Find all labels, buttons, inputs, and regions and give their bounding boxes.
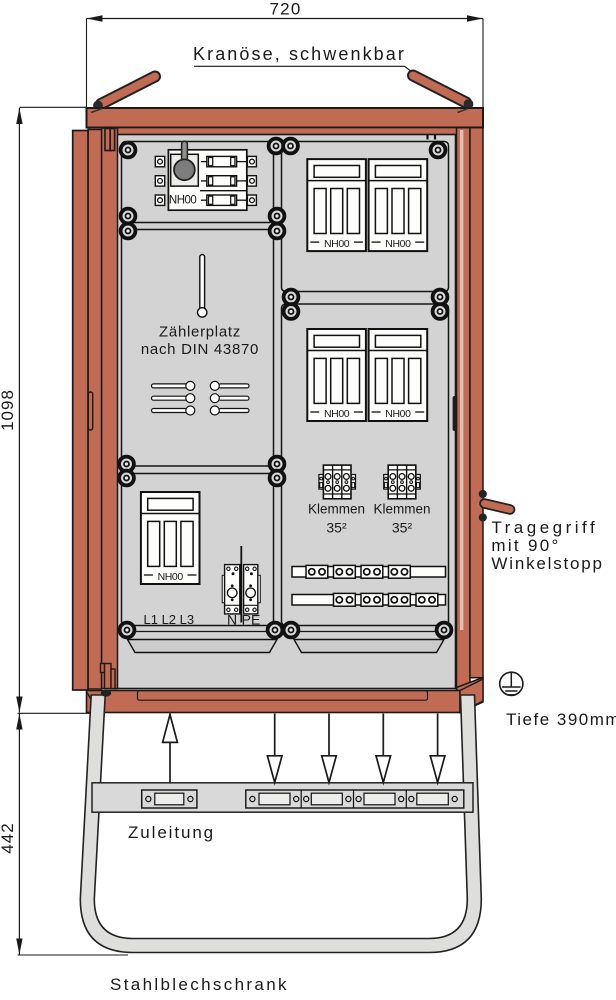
svg-text:1098: 1098 [0, 389, 17, 431]
svg-text:Kranöse, schwenkbar: Kranöse, schwenkbar [193, 44, 406, 64]
svg-text:Klemmen: Klemmen [373, 502, 430, 517]
svg-text:Tragegriff: Tragegriff [491, 518, 598, 537]
svg-text:Zählerplatz: Zählerplatz [159, 324, 241, 341]
svg-text:PE: PE [242, 612, 261, 628]
svg-text:Klemmen: Klemmen [308, 502, 365, 517]
svg-text:Stahlblechschrank: Stahlblechschrank [110, 975, 289, 994]
svg-text:Tiefe 390mm: Tiefe 390mm [506, 710, 616, 729]
svg-text:N: N [227, 612, 237, 628]
svg-text:442: 442 [0, 822, 17, 853]
svg-text:35²: 35² [392, 520, 413, 536]
svg-text:nach DIN 43870: nach DIN 43870 [141, 341, 259, 358]
svg-text:Winkelstopp: Winkelstopp [491, 554, 603, 573]
svg-text:Zuleitung: Zuleitung [128, 823, 215, 842]
svg-text:35²: 35² [326, 520, 347, 536]
svg-text:NH00: NH00 [169, 195, 197, 207]
svg-text:720: 720 [270, 0, 302, 19]
svg-text:L1 L2 L3: L1 L2 L3 [144, 612, 195, 627]
svg-text:mit 90°: mit 90° [491, 536, 560, 555]
